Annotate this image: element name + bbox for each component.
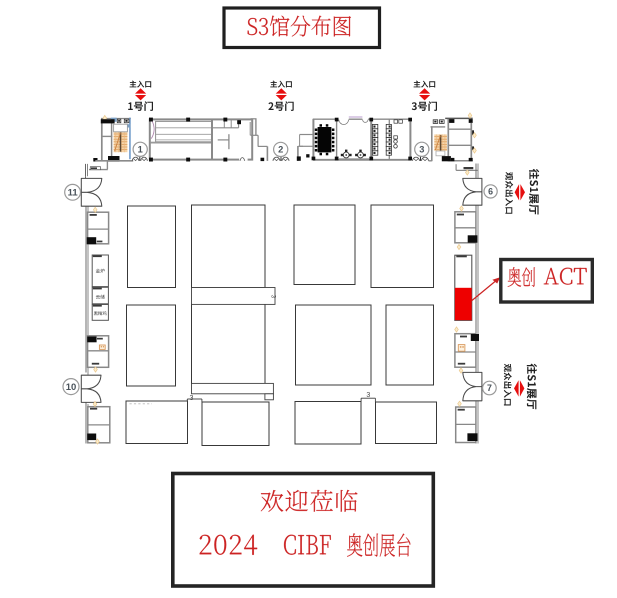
svg-text:3: 3 <box>269 295 276 299</box>
svg-text:3: 3 <box>419 145 424 155</box>
svg-text:3: 3 <box>366 392 370 399</box>
svg-text:2: 2 <box>278 145 283 155</box>
svg-text:10: 10 <box>66 382 77 393</box>
svg-text:3: 3 <box>190 395 194 402</box>
svg-text:6: 6 <box>488 187 493 197</box>
svg-text:1: 1 <box>138 145 143 155</box>
svg-text:11: 11 <box>68 188 79 199</box>
svg-text:7: 7 <box>487 383 492 393</box>
